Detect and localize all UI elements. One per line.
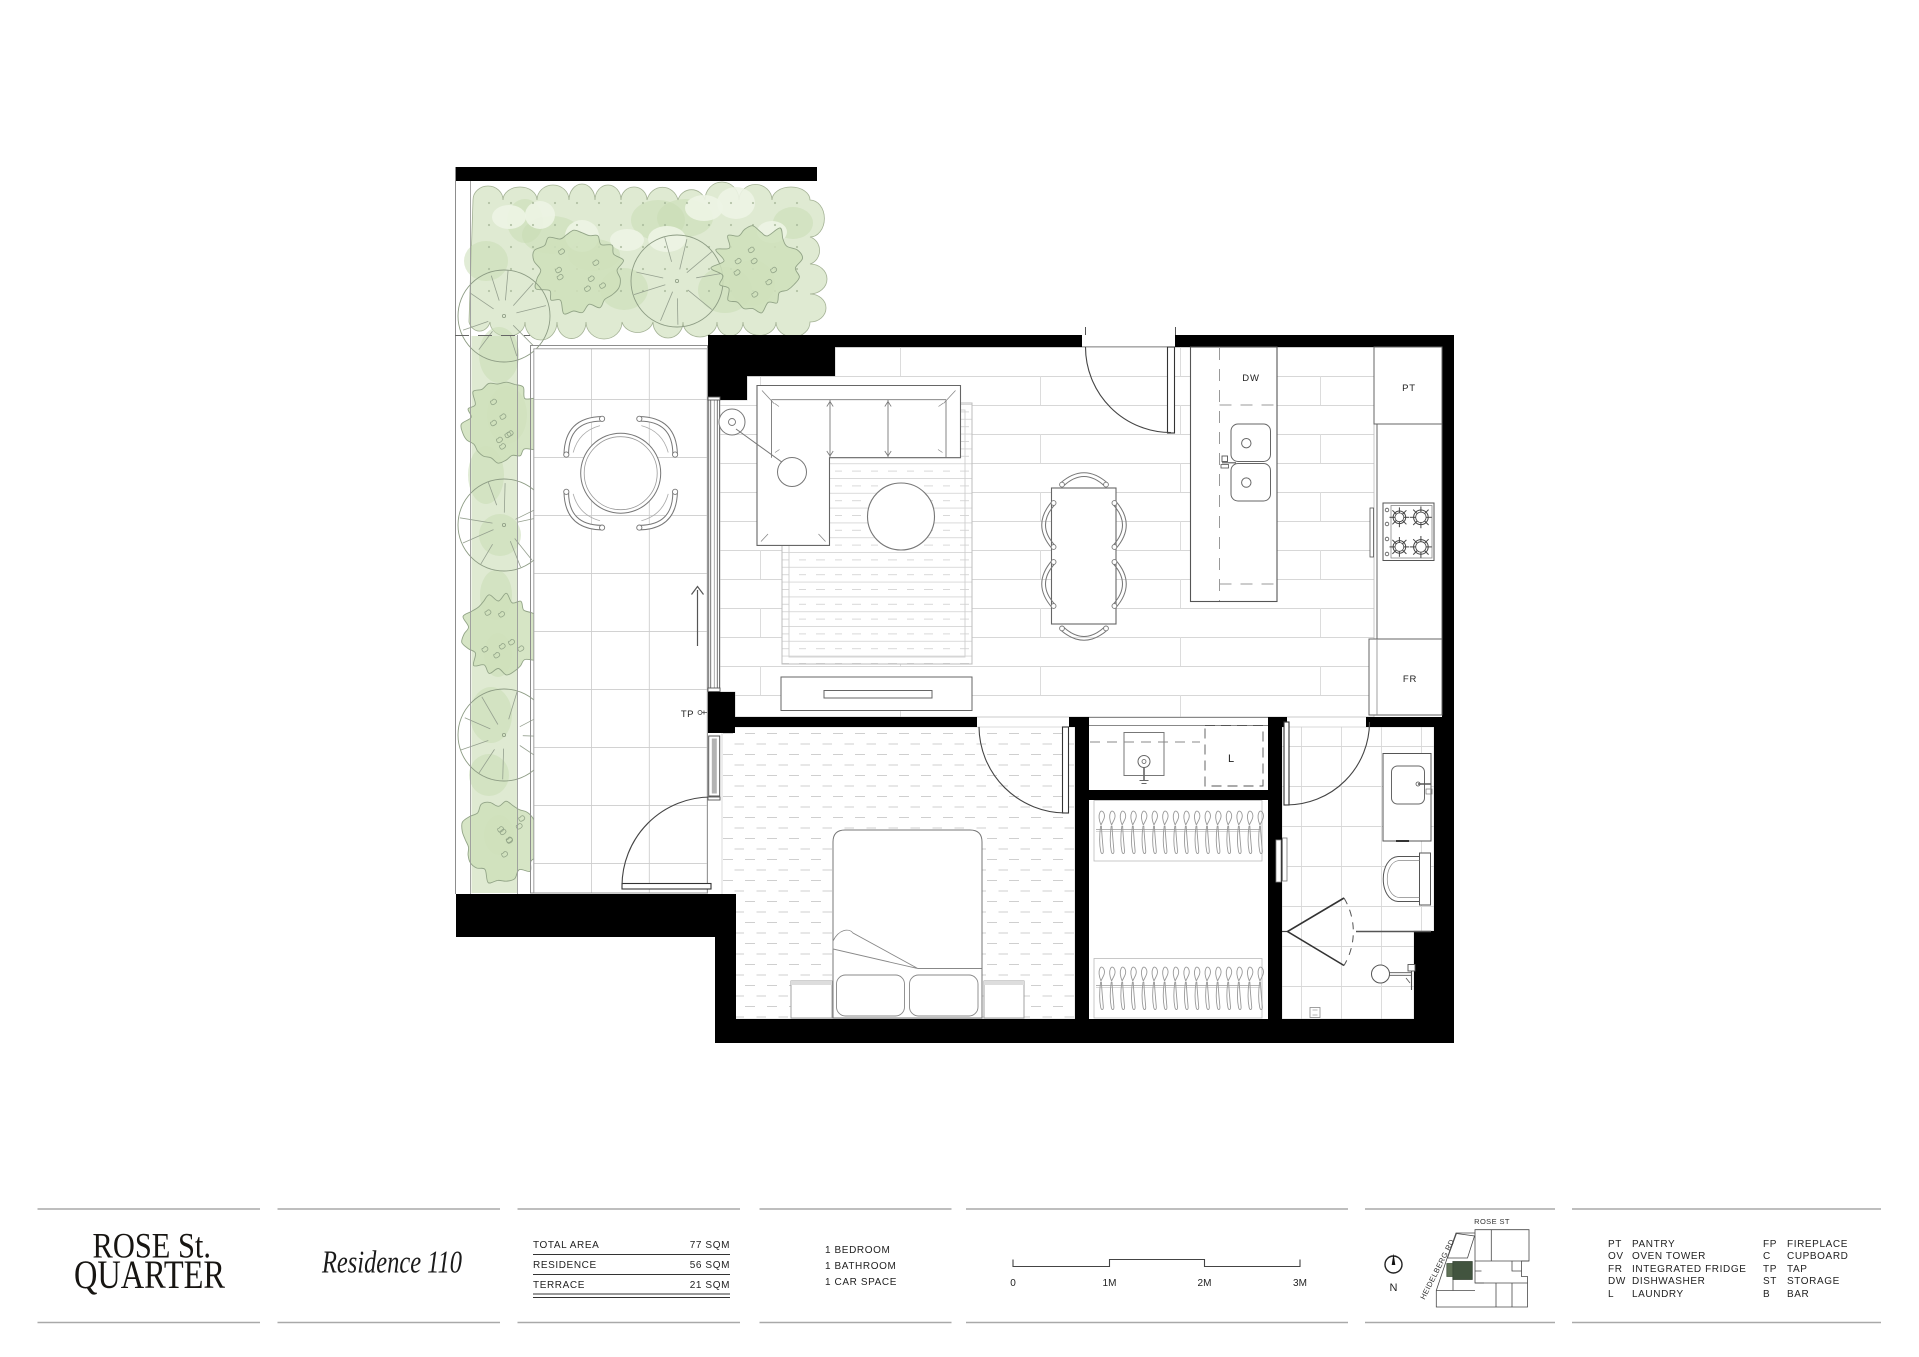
svg-text:FIREPLACE: FIREPLACE	[1787, 1239, 1848, 1250]
svg-text:OVEN TOWER: OVEN TOWER	[1632, 1251, 1706, 1262]
svg-text:21 SQM: 21 SQM	[690, 1280, 730, 1291]
svg-text:L: L	[1228, 753, 1235, 765]
svg-text:DISHWASHER: DISHWASHER	[1632, 1276, 1705, 1287]
svg-text:3M: 3M	[1293, 1278, 1307, 1289]
svg-text:BAR: BAR	[1787, 1289, 1809, 1300]
svg-text:PANTRY: PANTRY	[1632, 1239, 1675, 1250]
svg-text:TERRACE: TERRACE	[533, 1280, 585, 1291]
svg-text:STORAGE: STORAGE	[1787, 1276, 1840, 1287]
svg-text:L: L	[1608, 1289, 1614, 1300]
svg-text:RESIDENCE: RESIDENCE	[533, 1260, 597, 1271]
svg-text:PT: PT	[1402, 383, 1416, 394]
svg-text:TP: TP	[681, 709, 694, 720]
svg-text:N: N	[1390, 1282, 1398, 1294]
svg-text:LAUNDRY: LAUNDRY	[1632, 1289, 1684, 1300]
svg-text:CUPBOARD: CUPBOARD	[1787, 1251, 1848, 1262]
svg-text:77 SQM: 77 SQM	[690, 1240, 730, 1251]
svg-text:C: C	[1763, 1251, 1771, 1262]
svg-text:TAP: TAP	[1787, 1264, 1808, 1275]
svg-text:INTEGRATED FRIDGE: INTEGRATED FRIDGE	[1632, 1264, 1746, 1275]
svg-text:FR: FR	[1403, 674, 1417, 685]
svg-text:DW: DW	[1608, 1276, 1626, 1287]
svg-text:1 BEDROOM: 1 BEDROOM	[825, 1245, 890, 1256]
svg-text:PT: PT	[1608, 1239, 1622, 1250]
svg-text:2M: 2M	[1198, 1278, 1212, 1289]
svg-text:ROSE ST: ROSE ST	[1474, 1217, 1510, 1226]
svg-text:FR: FR	[1608, 1264, 1623, 1275]
svg-text:FP: FP	[1763, 1239, 1777, 1250]
svg-text:Residence 110: Residence 110	[321, 1244, 462, 1280]
svg-text:56 SQM: 56 SQM	[690, 1260, 730, 1271]
svg-text:OV: OV	[1608, 1251, 1624, 1262]
svg-text:TP: TP	[1763, 1264, 1777, 1275]
svg-text:1 BATHROOM: 1 BATHROOM	[825, 1261, 896, 1272]
svg-text:1M: 1M	[1103, 1278, 1117, 1289]
svg-text:B: B	[1763, 1289, 1770, 1300]
svg-text:QUARTER: QUARTER	[74, 1252, 225, 1297]
svg-text:1 CAR SPACE: 1 CAR SPACE	[825, 1277, 897, 1288]
svg-text:0: 0	[1010, 1278, 1016, 1289]
svg-text:ST: ST	[1763, 1276, 1777, 1287]
svg-text:DW: DW	[1242, 373, 1259, 384]
svg-text:TOTAL AREA: TOTAL AREA	[533, 1240, 599, 1251]
